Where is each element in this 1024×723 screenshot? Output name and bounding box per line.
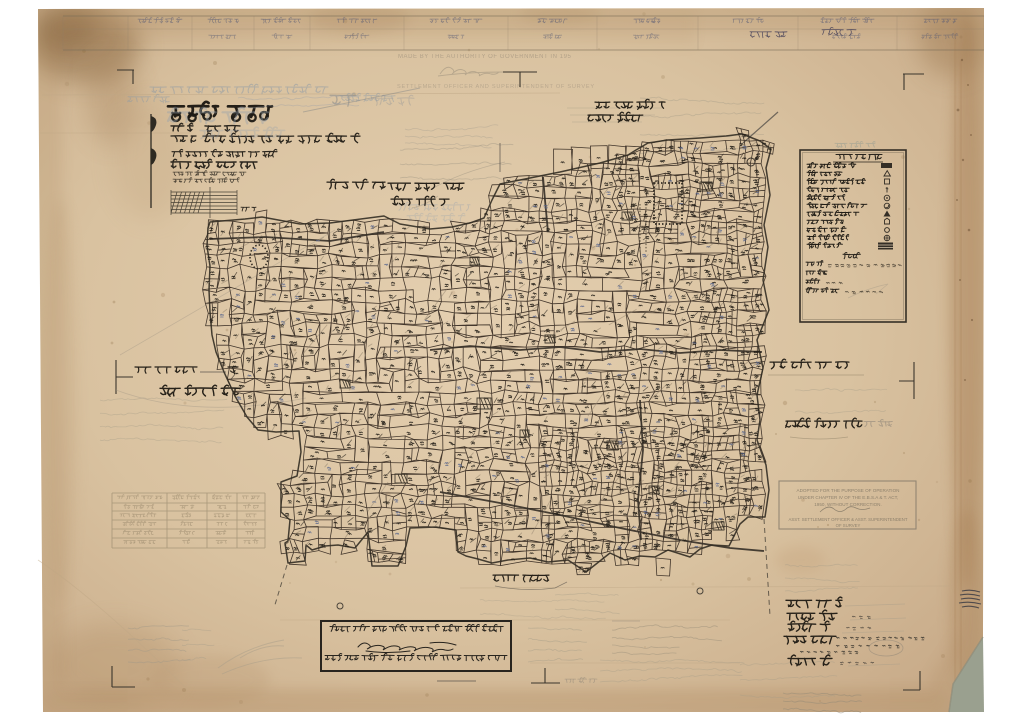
svg-text:1950, WITHOUT CORRECTION.: 1950, WITHOUT CORRECTION.	[814, 502, 882, 507]
svg-text:SETTLEMENT OFFICER AND SUPERIN: SETTLEMENT OFFICER AND SUPERINTENDENT OF…	[397, 84, 595, 90]
svg-text:MADE BY THE AUTHORITY OF GOVER: MADE BY THE AUTHORITY OF GOVERNMENT IN 1…	[398, 54, 571, 60]
svg-text:ASST. SETTLEMENT OFFICER & ASS: ASST. SETTLEMENT OFFICER & ASST. SUPERIN…	[788, 517, 907, 522]
svg-text:ADOPTED FOR THE PURPOSE OF OPE: ADOPTED FOR THE PURPOSE OF OPERATION	[797, 488, 900, 493]
svg-text:UNDER CHAPTER IV OF THE E.B.S.: UNDER CHAPTER IV OF THE E.B.S.A & T. ACT…	[798, 495, 898, 500]
svg-text:OF SURVEY: OF SURVEY	[836, 523, 861, 528]
